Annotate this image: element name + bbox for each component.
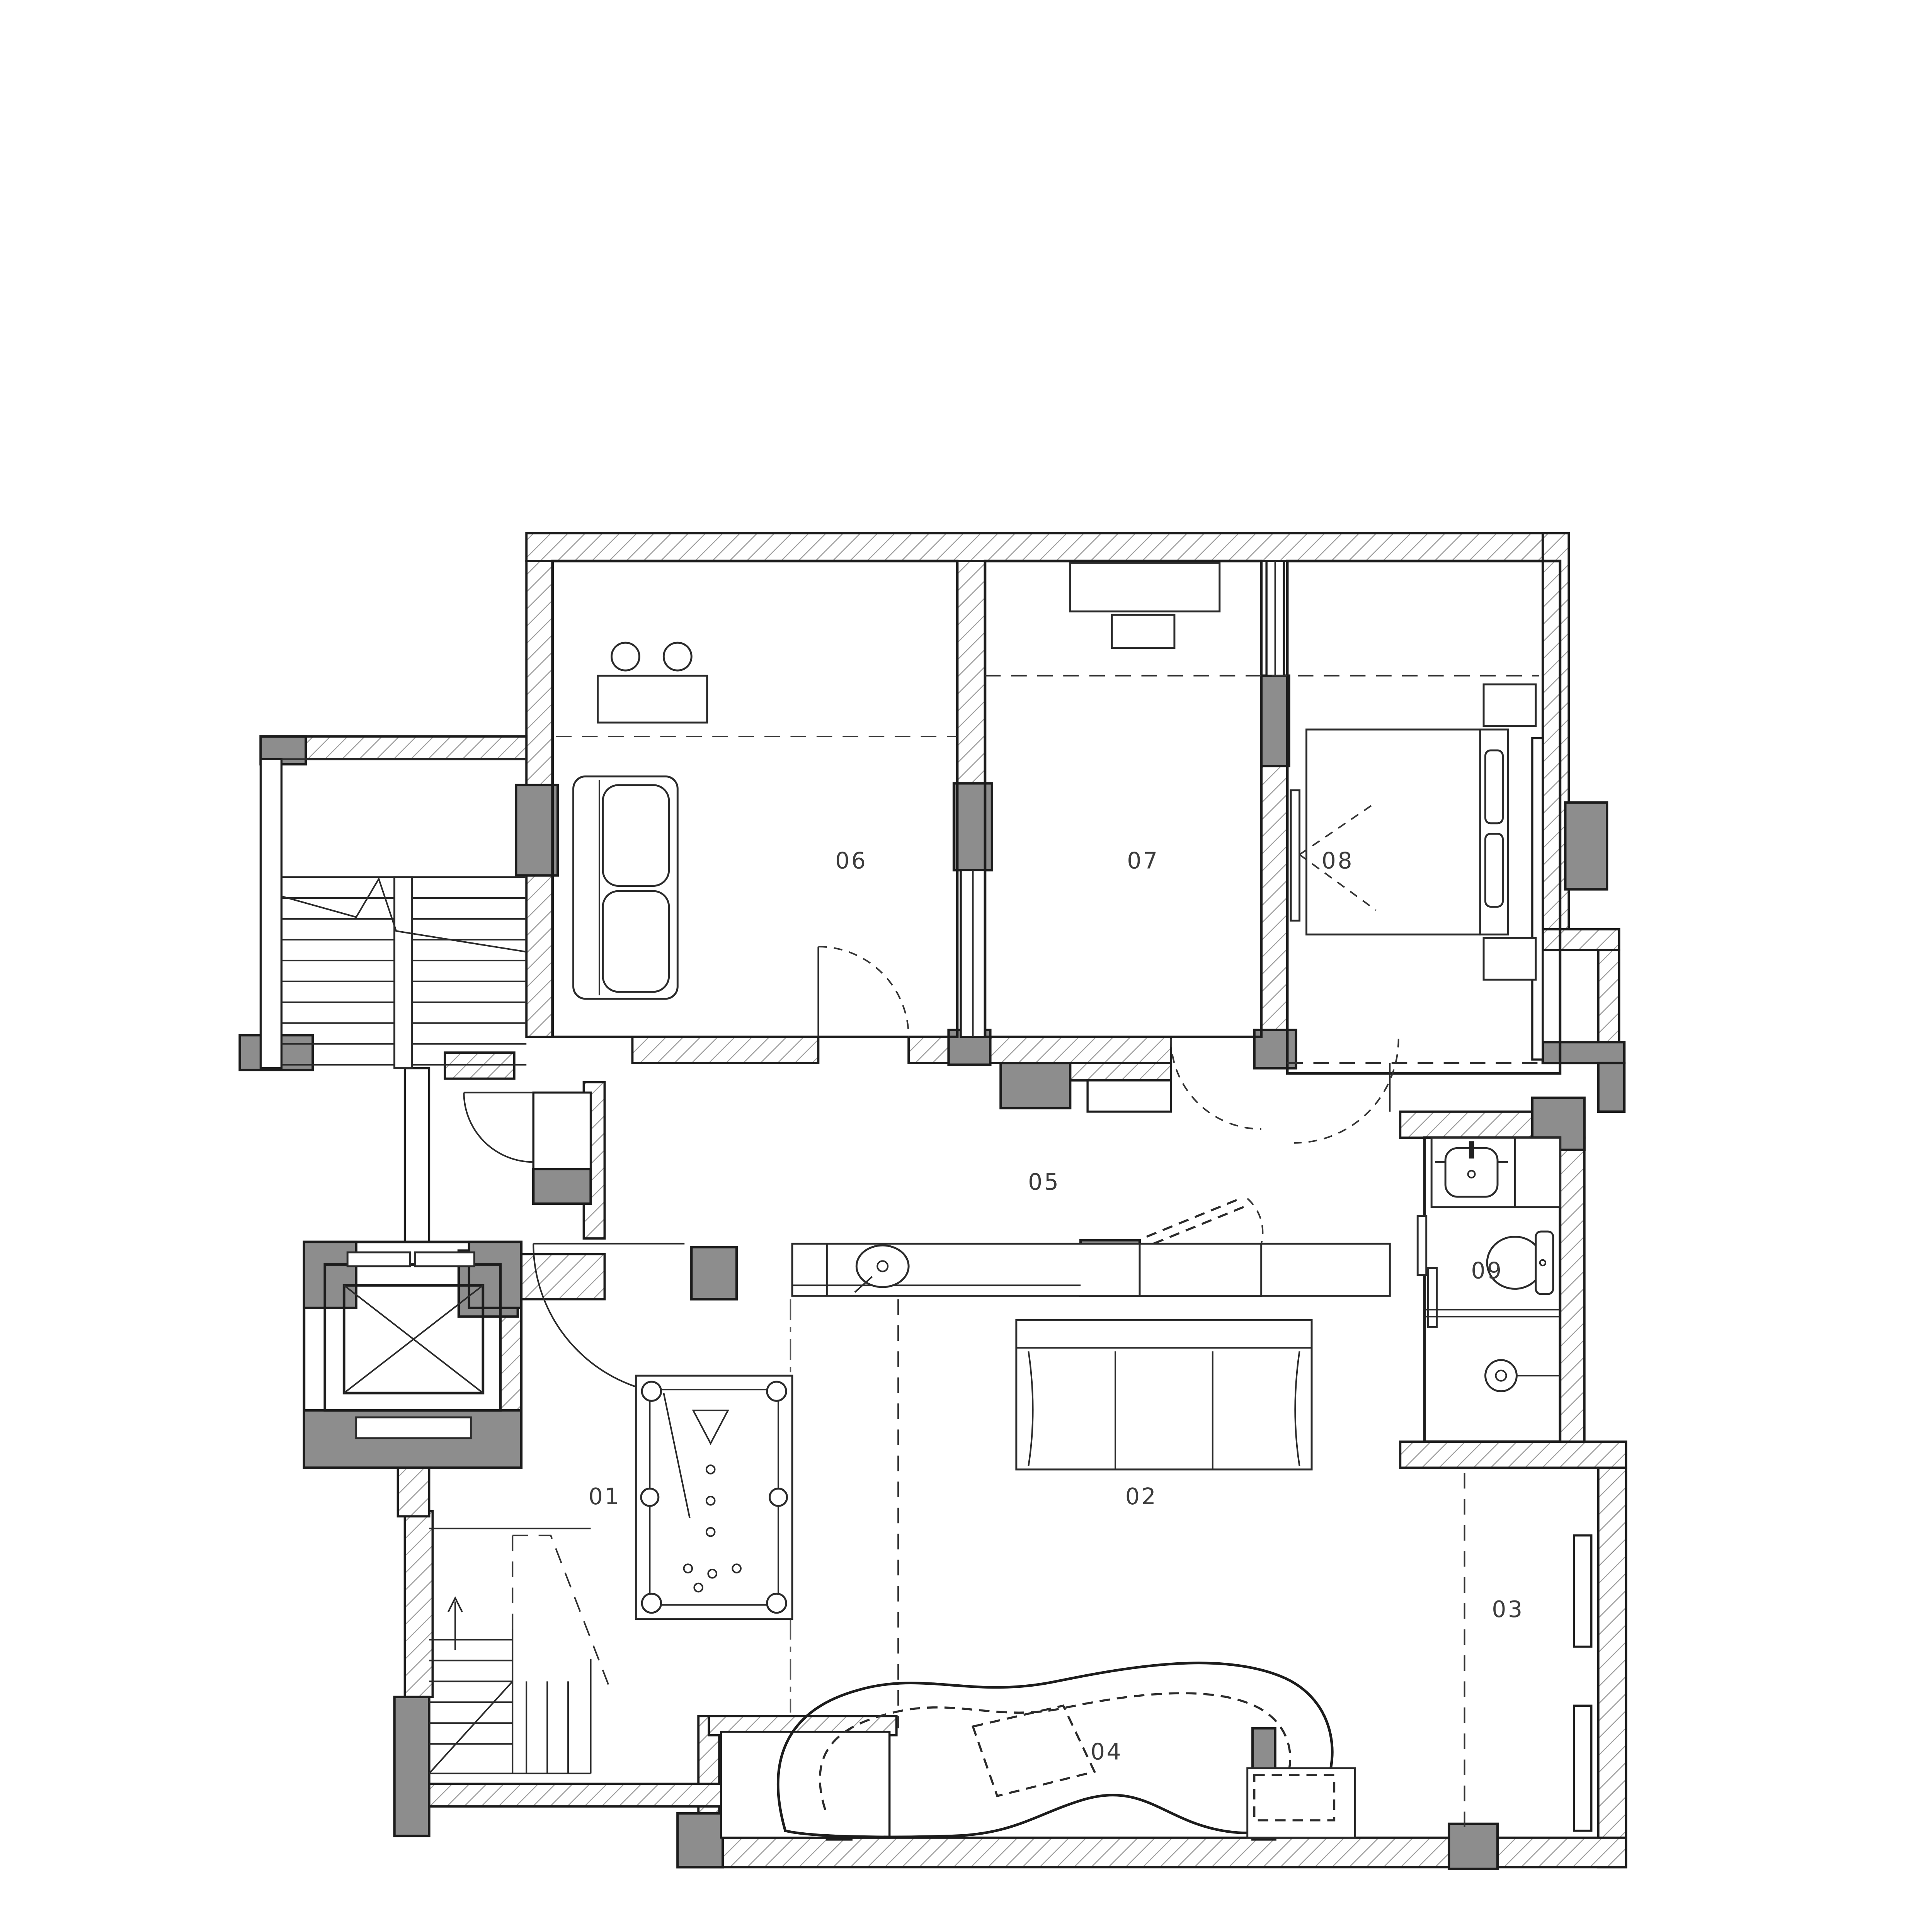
wall-wc-right bbox=[1560, 1138, 1584, 1442]
door-arc-room08 bbox=[1294, 1039, 1399, 1143]
column bbox=[1261, 676, 1289, 766]
elevator-wall-right bbox=[500, 1308, 521, 1410]
wall-stairlower-left bbox=[405, 1511, 433, 1697]
stairhall-left-wall bbox=[260, 759, 281, 1068]
column bbox=[395, 1697, 429, 1836]
room-label-09: 09 bbox=[1471, 1257, 1503, 1284]
corridor-wall-notch bbox=[1070, 1063, 1171, 1080]
door-arc-room06 bbox=[818, 947, 909, 1037]
vestibule-left-wall bbox=[405, 1068, 429, 1242]
corridor-wall-a bbox=[632, 1037, 818, 1063]
elevator-door-leaf bbox=[415, 1252, 475, 1266]
door-arc-closet bbox=[464, 1092, 533, 1162]
column bbox=[691, 1247, 737, 1299]
wc-pocket-door bbox=[1428, 1268, 1436, 1327]
column bbox=[1449, 1824, 1498, 1869]
lightwell-window-a bbox=[1574, 1536, 1591, 1647]
pool-cabinet bbox=[1247, 1768, 1355, 1838]
pillow bbox=[1486, 750, 1503, 823]
gamepool-equipment-room bbox=[721, 1732, 890, 1838]
staircase-upper bbox=[281, 877, 526, 1068]
shower-drain bbox=[1486, 1360, 1517, 1391]
room-label-05: 05 bbox=[1028, 1169, 1060, 1195]
column bbox=[1001, 1063, 1070, 1108]
room-labels: 01 02 03 04 05 06 07 08 09 bbox=[589, 848, 1524, 1765]
wall-top bbox=[526, 533, 1569, 561]
lightwell-window-b bbox=[1574, 1706, 1591, 1831]
stair-handrail bbox=[395, 877, 412, 1068]
room-07-furniture bbox=[1070, 563, 1220, 648]
column bbox=[1565, 803, 1607, 889]
room-06-furniture bbox=[574, 643, 707, 999]
room-label-02: 02 bbox=[1125, 1483, 1157, 1510]
bay-niche bbox=[1560, 950, 1598, 1042]
closet bbox=[533, 1092, 591, 1169]
room-label-07: 07 bbox=[1127, 848, 1159, 874]
bay-top bbox=[1543, 929, 1619, 950]
wall-room01-top bbox=[518, 1254, 605, 1299]
pocket bbox=[642, 1594, 661, 1612]
pool-table bbox=[636, 1376, 792, 1619]
column bbox=[533, 1169, 591, 1204]
floor-plan-drawing: 01 02 03 04 05 06 07 08 09 N 1 2 5 地下二层平… bbox=[0, 0, 1918, 1932]
room-label-08: 08 bbox=[1322, 848, 1354, 874]
room-02-furniture bbox=[1016, 1320, 1312, 1469]
wall-stairlower-bottom bbox=[429, 1784, 733, 1806]
wc-pocket-door bbox=[1418, 1216, 1426, 1275]
pocket bbox=[770, 1488, 787, 1506]
partition-07-08 bbox=[1261, 762, 1287, 1037]
room-08-furniture bbox=[1291, 684, 1536, 980]
pocket bbox=[642, 1382, 661, 1401]
counter bbox=[597, 676, 707, 723]
door-arc-room07 bbox=[1171, 1039, 1261, 1129]
wall-lightwell-right bbox=[1598, 1468, 1626, 1867]
partition-06-07-upper bbox=[957, 561, 985, 783]
elevator-door-leaf bbox=[347, 1252, 410, 1266]
stair-void-outline bbox=[512, 1536, 610, 1689]
window-sill-08 bbox=[1532, 738, 1543, 1060]
bed-mattress bbox=[1307, 730, 1481, 934]
stool bbox=[611, 643, 639, 670]
wall-tv bbox=[1291, 790, 1299, 920]
pillow bbox=[1486, 834, 1503, 907]
pocket bbox=[767, 1594, 786, 1612]
wall-wc-bottom bbox=[1400, 1442, 1626, 1468]
faucet bbox=[1469, 1141, 1474, 1158]
column bbox=[1598, 1063, 1624, 1112]
room-label-06: 06 bbox=[835, 848, 867, 874]
column bbox=[677, 1813, 723, 1867]
pool-ledge bbox=[973, 1706, 1094, 1796]
corridor-wall-b bbox=[909, 1037, 948, 1063]
media-cabinet bbox=[1070, 563, 1220, 611]
room-label-03: 03 bbox=[1492, 1596, 1524, 1622]
nightstand bbox=[1484, 938, 1536, 980]
equipment-box bbox=[1112, 615, 1174, 648]
room-label-04: 04 bbox=[1091, 1739, 1123, 1765]
corridor-wall-c bbox=[990, 1037, 1171, 1063]
wall-stairhall-bottom bbox=[445, 1053, 514, 1078]
sofa-room02 bbox=[1016, 1320, 1312, 1469]
bay-right bbox=[1598, 950, 1619, 1042]
column bbox=[1543, 1042, 1624, 1063]
nightstand bbox=[1484, 684, 1536, 726]
corridor-niche bbox=[1087, 1080, 1171, 1112]
elevator bbox=[304, 1242, 521, 1468]
sofa-cushion bbox=[603, 785, 669, 886]
piano-lid-arc bbox=[1247, 1199, 1263, 1244]
room-label-01: 01 bbox=[589, 1483, 621, 1510]
pocket bbox=[767, 1382, 786, 1401]
column bbox=[469, 1242, 521, 1308]
pocket bbox=[641, 1488, 659, 1506]
sofa-cushion bbox=[603, 891, 669, 992]
staircase-lower bbox=[429, 1598, 591, 1774]
turntable bbox=[856, 1245, 909, 1287]
stool bbox=[664, 643, 691, 670]
toilet-tank bbox=[1536, 1231, 1553, 1294]
wall-elevator-stub bbox=[398, 1468, 429, 1516]
elevator-counterweight bbox=[356, 1417, 471, 1438]
piano bbox=[1140, 1244, 1261, 1296]
corridor-console bbox=[792, 1199, 1390, 1296]
